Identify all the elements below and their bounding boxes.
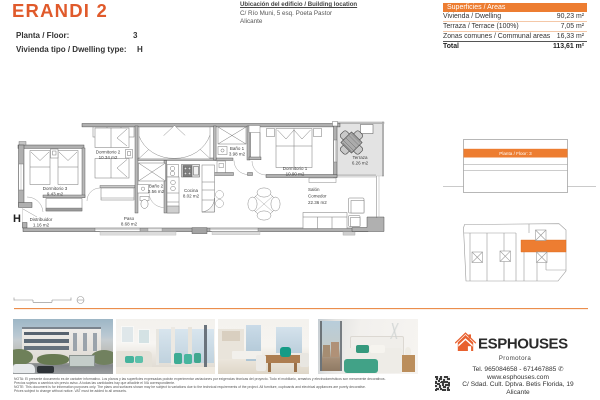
svg-text:Salón: Salón xyxy=(308,187,320,192)
svg-text:3.56 m2: 3.56 m2 xyxy=(148,189,165,194)
svg-text:9.43 m2: 9.43 m2 xyxy=(47,192,64,197)
svg-text:Dormitorio 2: Dormitorio 2 xyxy=(96,150,121,155)
svg-text:8.68 m2: 8.68 m2 xyxy=(121,222,138,227)
svg-text:ESPHOUSES: ESPHOUSES xyxy=(478,336,568,353)
svg-text:Distribuidor: Distribuidor xyxy=(30,217,53,222)
svg-text:8.02 m2: 8.02 m2 xyxy=(183,194,200,199)
svg-text:H: H xyxy=(13,213,21,225)
svg-text:Cocina: Cocina xyxy=(184,188,199,193)
svg-text:Baño 1: Baño 1 xyxy=(230,146,245,151)
svg-text:Planta / Floor: 3: Planta / Floor: 3 xyxy=(499,151,532,156)
svg-text:10.34 m2: 10.34 m2 xyxy=(99,155,118,160)
svg-text:Baño 2: Baño 2 xyxy=(149,184,164,189)
svg-text:10.90 m2: 10.90 m2 xyxy=(286,172,305,177)
svg-text:1.16 m2: 1.16 m2 xyxy=(33,223,50,228)
svg-text:Terraza: Terraza xyxy=(352,155,368,160)
svg-text:Dormitorio 1: Dormitorio 1 xyxy=(283,166,308,171)
svg-text:3.98 m2: 3.98 m2 xyxy=(229,152,246,157)
svg-text:Paso: Paso xyxy=(124,216,135,221)
svg-text:Comedor: Comedor xyxy=(308,194,327,199)
svg-text:22.36 m2: 22.36 m2 xyxy=(308,200,327,205)
svg-text:Dormitorio 3: Dormitorio 3 xyxy=(43,186,68,191)
svg-text:6.26 m2: 6.26 m2 xyxy=(352,161,369,166)
